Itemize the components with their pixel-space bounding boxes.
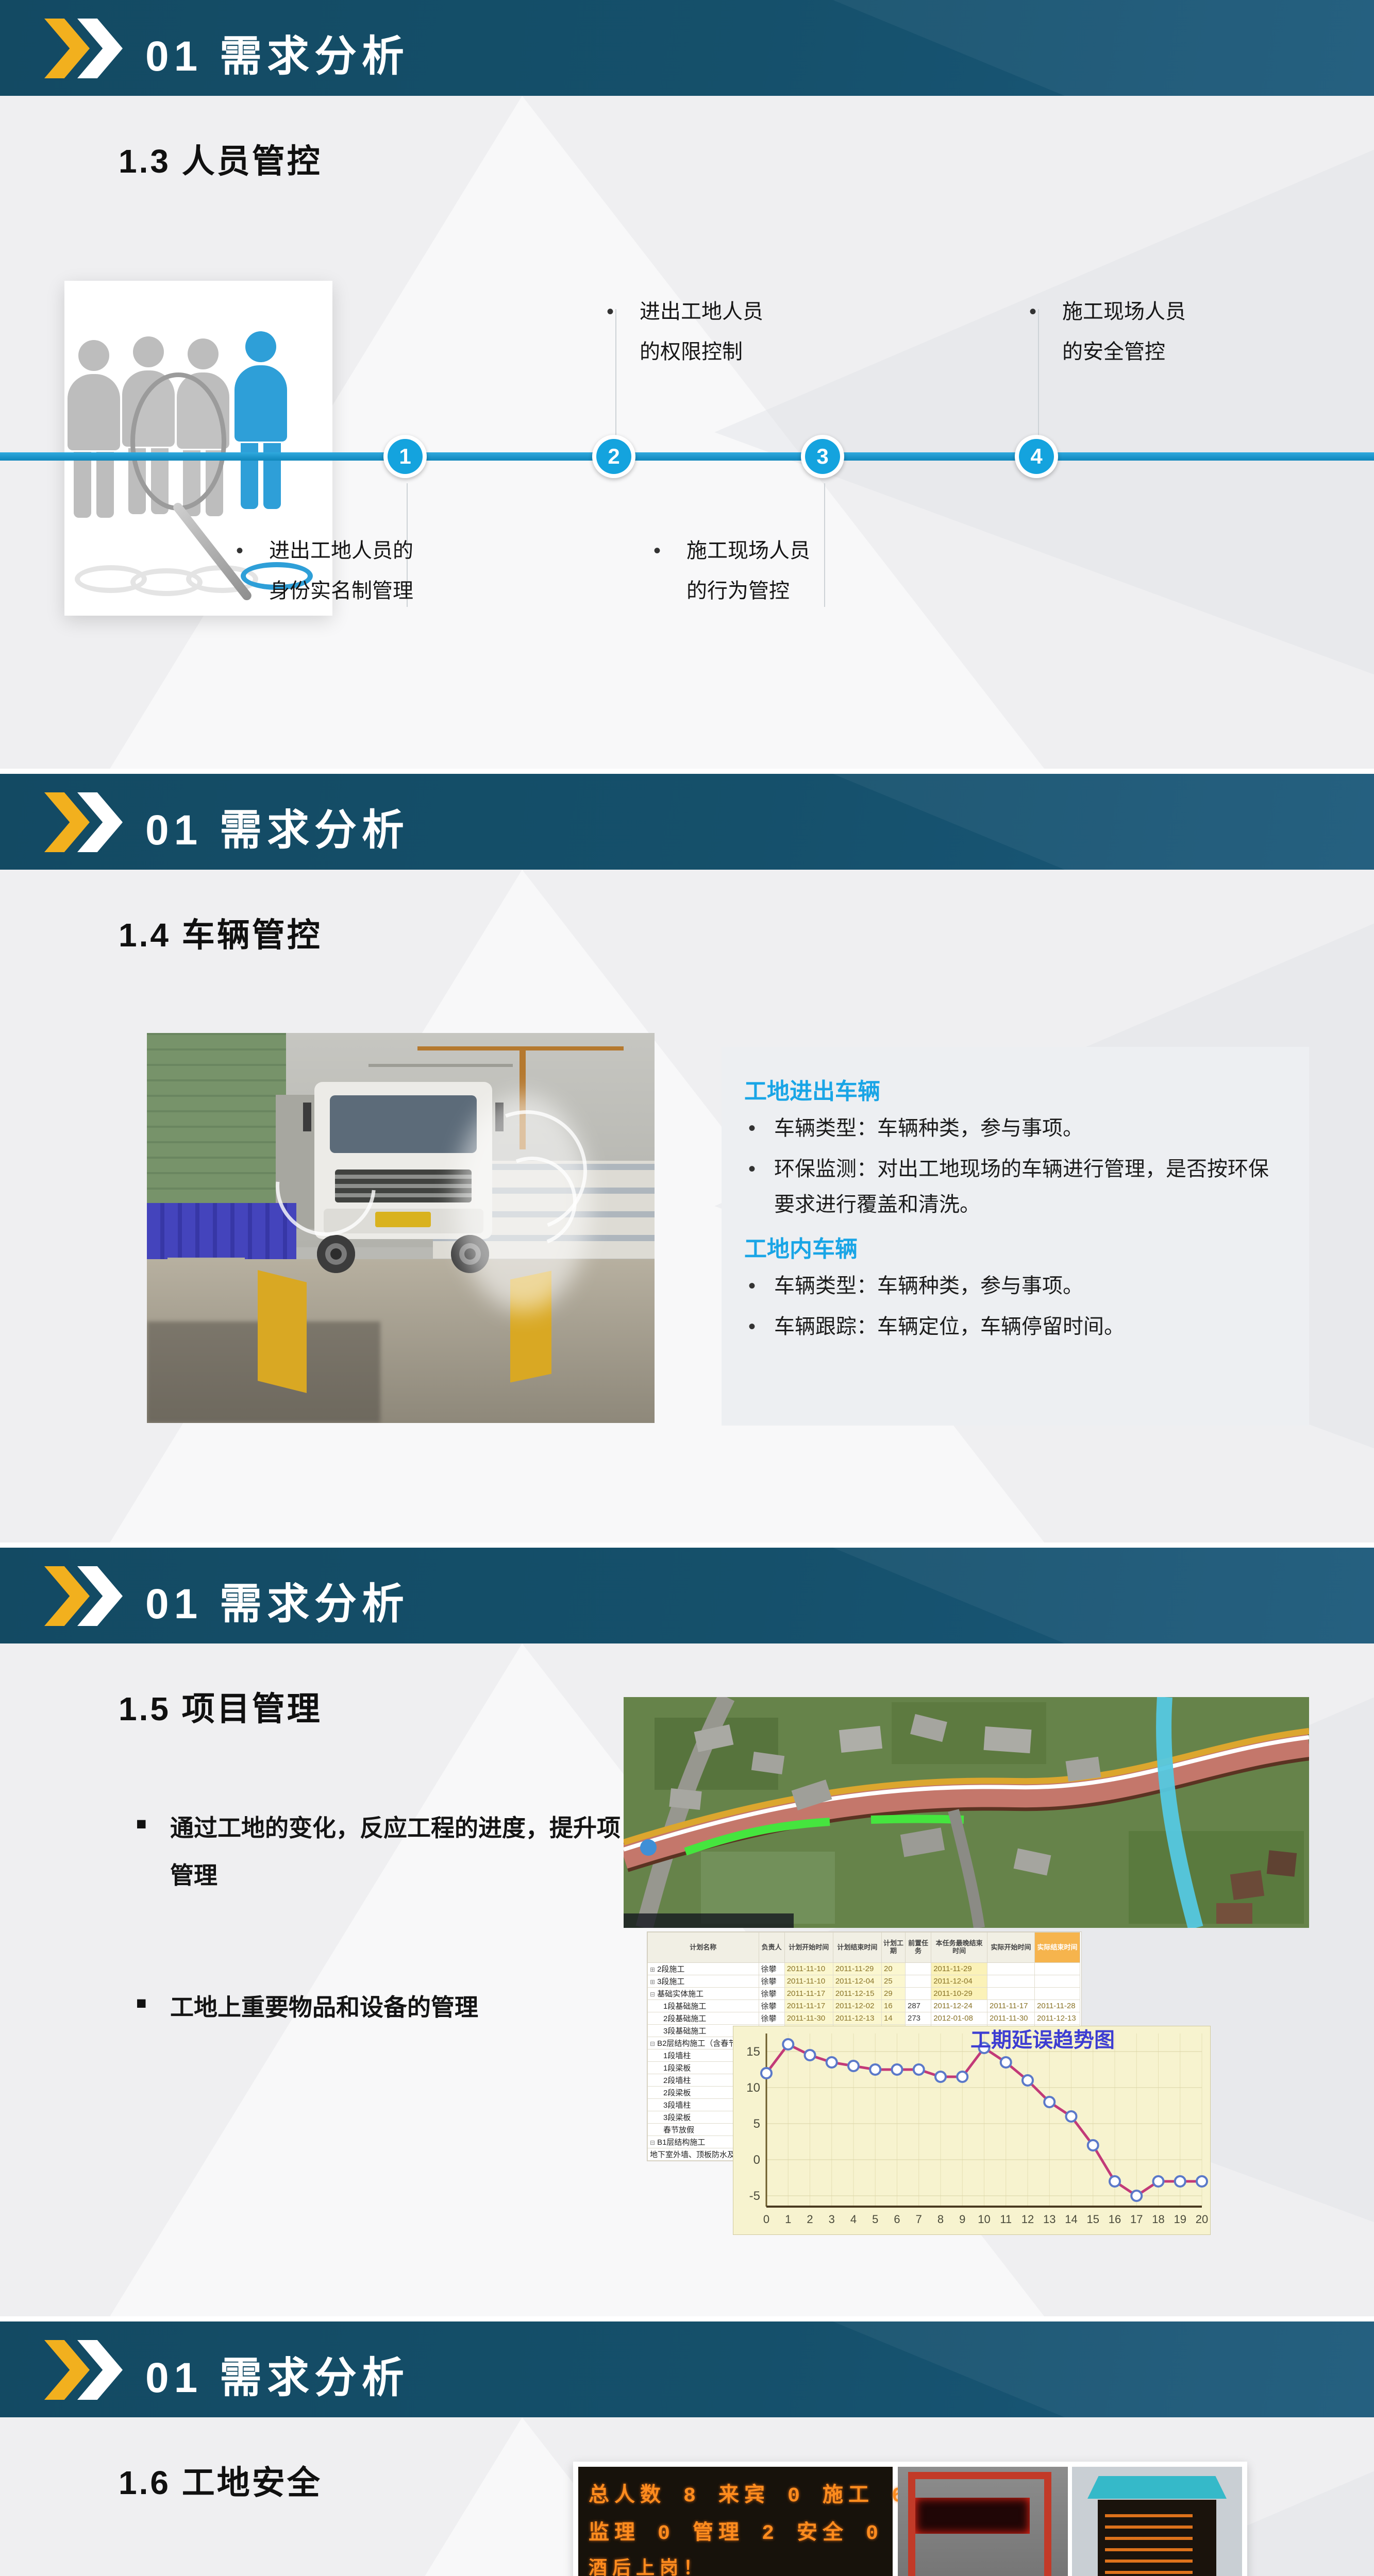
task-name-cell: 2段基础施工	[648, 2012, 759, 2025]
chart-data-point	[827, 2057, 837, 2067]
table-cell	[1035, 1963, 1080, 1975]
table-cell: 2011-11-30	[784, 2012, 833, 2025]
chart-data-point	[1088, 2140, 1098, 2150]
chart-label: 5	[872, 2213, 878, 2226]
chart-label: 12	[1021, 2213, 1034, 2226]
wash-bay-barrier	[258, 1270, 307, 1393]
header-shade	[601, 0, 1374, 96]
timeline-text: 进出工地人员 的权限控制	[607, 292, 828, 372]
chart-data-point	[805, 2050, 815, 2060]
table-cell: 2011-11-29	[833, 1963, 881, 1975]
map-building	[839, 1726, 882, 1753]
chart-data-point	[1197, 2176, 1207, 2187]
column-header: 计划开始时间	[784, 1933, 833, 1963]
table-cell: 2011-12-04	[833, 1975, 881, 1988]
chart-label: 3	[829, 2213, 835, 2226]
timeline-node: 4	[1015, 435, 1058, 478]
tree-toggle-icon[interactable]: ⊟	[650, 1991, 655, 1998]
chart-data-point	[870, 2064, 880, 2075]
timeline-label: •施工现场人员 的安全管控	[1029, 292, 1251, 372]
chart-label: 14	[1065, 2213, 1077, 2226]
led-text-line: 监理 0 管理 2 安全 0	[589, 2515, 893, 2546]
red-led-sign	[915, 2498, 1030, 2534]
section-header: 01 需求分析	[0, 774, 1374, 870]
header-shade	[601, 774, 1374, 870]
section-header-title: 01 需求分析	[145, 1569, 409, 1631]
chart-label: 16	[1109, 2213, 1121, 2226]
table-cell: 2011-12-04	[931, 1975, 987, 1988]
chart-label: 15	[1087, 2213, 1099, 2226]
photo-outdoor-led-board	[1072, 2467, 1242, 2576]
table-row[interactable]: ⊞3段施工徐攀2011-11-102011-12-04252011-12-04	[648, 1975, 1080, 1988]
table-cell: 2011-11-17	[987, 2000, 1035, 2012]
vehicle-section-heading: 工地内车辆	[744, 1230, 1286, 1263]
column-header: 计划工期	[881, 1933, 905, 1963]
table-cell: 2011-10-29	[931, 1988, 987, 2000]
column-header: 计划结束时间	[833, 1933, 881, 1963]
table-cell: 2011-11-17	[784, 2000, 833, 2012]
chart-label: -5	[749, 2189, 760, 2203]
chevron-icon	[44, 19, 90, 78]
photo-gate-led-scaffold	[898, 2467, 1068, 2576]
bullet-icon: •	[236, 531, 243, 571]
slide-title: 1.6 工地安全	[119, 2456, 322, 2504]
table-cell: 2011-11-29	[931, 1963, 987, 1975]
column-header: 前置任务	[906, 1933, 931, 1963]
table-cell	[906, 1975, 931, 1988]
slide-1-4-vehicle-control: 01 需求分析 1.4 车辆管控 工地进出车辆车辆类型：车辆种类，参与事项。环保…	[0, 774, 1374, 1543]
chart-data-point	[957, 2072, 967, 2082]
table-cell	[987, 1975, 1035, 1988]
table-cell: 徐攀	[759, 1988, 784, 2000]
chart-data-point	[1001, 2057, 1011, 2067]
tree-toggle-icon[interactable]: ⊞	[650, 1966, 655, 1973]
section-header-title: 01 需求分析	[145, 2343, 409, 2404]
task-name-cell: ⊟基础实体施工	[648, 1988, 759, 2000]
task-name-cell: 1段基础施工	[648, 2000, 759, 2012]
chart-label: 1	[785, 2213, 791, 2226]
highlighted-person-icon	[234, 331, 287, 509]
chart-label: 20	[1196, 2213, 1208, 2226]
table-cell: 2011-11-10	[784, 1963, 833, 1975]
table-cell: 2011-12-13	[1035, 2012, 1080, 2025]
map-building	[701, 1852, 835, 1924]
bullet-icon: •	[654, 531, 661, 571]
chart-data-point	[761, 2068, 772, 2078]
map-building	[1267, 1850, 1297, 1876]
table-cell	[987, 1988, 1035, 2000]
led-board	[1098, 2500, 1216, 2576]
vehicle-section-heading: 工地进出车辆	[744, 1073, 1286, 1106]
table-cell: 2011-11-17	[784, 1988, 833, 2000]
table-cell: 徐攀	[759, 1963, 784, 1975]
chart-data-point	[1066, 2111, 1077, 2122]
chevron-icon	[44, 792, 90, 852]
table-cell: 25	[881, 1975, 905, 1988]
bim-site-map-screenshot	[624, 1697, 1309, 1928]
slide-1-6-site-safety: 01 需求分析 1.6 工地安全 人员安全管理佩戴安全帽管理人员吸烟管理人员在工…	[0, 2321, 1374, 2576]
header-shade	[601, 2321, 1374, 2417]
section-header: 01 需求分析	[0, 0, 1374, 96]
table-cell: 2011-12-15	[833, 1988, 881, 2000]
column-header: 实际结束时间	[1035, 1933, 1080, 1963]
table-cell: 2011-11-30	[987, 2012, 1035, 2025]
timeline-node: 3	[801, 435, 844, 478]
chart-label: 15	[746, 2045, 760, 2059]
map-building	[984, 1726, 1032, 1753]
table-cell: 273	[906, 2012, 931, 2025]
table-cell	[906, 1988, 931, 2000]
table-cell: 16	[881, 2000, 905, 2012]
chart-label: 7	[916, 2213, 922, 2226]
column-header: 负责人	[759, 1933, 784, 1963]
table-row[interactable]: 1段基础施工徐攀2011-11-172011-12-02162872011-12…	[648, 2000, 1080, 2012]
section-header: 01 需求分析	[0, 2321, 1374, 2417]
chevron-icon	[44, 2340, 90, 2400]
table-row[interactable]: ⊟基础实体施工徐攀2011-11-172011-12-15292011-10-2…	[648, 1988, 1080, 2000]
map-toolbar	[624, 1913, 794, 1928]
chart-label: 工期延误趋势图	[970, 2029, 1115, 2052]
map-compass-icon	[640, 1839, 657, 1856]
chart-data-point	[848, 2061, 859, 2071]
bullet-icon: •	[607, 292, 614, 332]
chart-data-point	[783, 2039, 793, 2049]
led-headcount-display: 总人数 8 来宾 0 施工 6监理 0 管理 2 安全 0酒后上岗！	[578, 2467, 893, 2576]
bullet-progress: 通过工地的变化，反应工程的进度，提升项目管理	[170, 1804, 665, 1899]
canopy	[1087, 2476, 1227, 2499]
table-cell: 2011-12-13	[833, 2012, 881, 2025]
map-building	[1216, 1903, 1252, 1924]
table-cell: 20	[881, 1963, 905, 1975]
chart-data-point	[1110, 2176, 1120, 2187]
table-row[interactable]: ⊞2段施工徐攀2011-11-102011-11-29202011-11-29	[648, 1963, 1080, 1975]
magnifier-icon	[130, 372, 226, 511]
chart-label: 8	[937, 2213, 944, 2226]
chart-data-point	[914, 2064, 924, 2075]
timeline-node: 2	[592, 435, 635, 478]
chart-label: 0	[753, 2153, 760, 2167]
header-shade	[601, 1548, 1374, 1643]
table-cell	[1035, 1975, 1080, 1988]
vehicle-bullet: 环保监测：对出工地现场的车辆进行管理，是否按环保要求进行覆盖和清洗。	[744, 1151, 1286, 1223]
vehicle-bullet: 车辆类型：车辆种类，参与事项。	[744, 1268, 1286, 1304]
chart-label: 9	[959, 2213, 965, 2226]
led-text-line: 总人数 8 来宾 0 施工 6	[589, 2478, 893, 2508]
chart-label: 0	[763, 2213, 769, 2226]
table-header-row: 计划名称负责人计划开始时间计划结束时间计划工期前置任务本任务最晚结束时间实际开始…	[648, 1933, 1080, 1963]
tree-toggle-icon[interactable]: ⊟	[650, 2040, 655, 2047]
chart-label: 10	[746, 2081, 760, 2095]
timeline-number: 3	[805, 439, 840, 474]
chart-label: 11	[1000, 2213, 1012, 2226]
chart-label: 6	[894, 2213, 900, 2226]
timeline-label: •进出工地人员 的权限控制	[607, 292, 828, 372]
chart-data-point	[1023, 2075, 1033, 2086]
table-cell: 29	[881, 1988, 905, 2000]
column-header: 本任务最晚结束时间	[931, 1933, 987, 1963]
slide-title: 1.3 人员管控	[119, 135, 322, 182]
chart-label: 4	[850, 2213, 857, 2226]
table-cell	[987, 1963, 1035, 1975]
table-cell: 2011-12-02	[833, 2000, 881, 2012]
vehicle-bullet-list: 车辆类型：车辆种类，参与事项。环保监测：对出工地现场的车辆进行管理，是否按环保要…	[744, 1111, 1286, 1222]
table-cell: 2011-12-24	[931, 2000, 987, 2012]
slide-1-5-project-management: 01 需求分析 1.5 项目管理 通过工地的变化，反应工程的进度，提升项目管理 …	[0, 1548, 1374, 2316]
map-building	[669, 1788, 701, 1810]
vehicle-info-panel: 工地进出车辆车辆类型：车辆种类，参与事项。环保监测：对出工地现场的车辆进行管理，…	[722, 1047, 1309, 1426]
slide-1-3-personnel-control: 01 需求分析 1.3 人员管控 1•进出工地人员的 身份实名制管理2•进出工地…	[0, 0, 1374, 769]
site-safety-photo-collage: 总人数 8 来宾 0 施工 6监理 0 管理 2 安全 0酒后上岗！	[573, 2462, 1247, 2576]
chart-data-point	[935, 2072, 946, 2082]
timeline-label: •施工现场人员 的行为管控	[654, 531, 875, 611]
timeline-label: •进出工地人员的 身份实名制管理	[236, 531, 458, 611]
timeline-number: 2	[596, 439, 631, 474]
table-cell: 徐攀	[759, 1975, 784, 1988]
table-cell	[906, 1963, 931, 1975]
table-cell: 2011-11-28	[1035, 2000, 1080, 2012]
section-header: 01 需求分析	[0, 1548, 1374, 1643]
chart-data-point	[1175, 2176, 1185, 2187]
tree-toggle-icon[interactable]: ⊟	[650, 2139, 655, 2146]
chart-data-point	[1044, 2097, 1054, 2107]
chart-label: 13	[1043, 2213, 1055, 2226]
chart-data-point	[1131, 2191, 1142, 2201]
vehicle-bullet: 车辆跟踪：车辆定位，车辆停留时间。	[744, 1309, 1286, 1345]
column-header: 计划名称	[648, 1933, 759, 1963]
table-cell	[1035, 1988, 1080, 2000]
timeline-node: 1	[383, 435, 427, 478]
table-cell: 徐攀	[759, 2000, 784, 2012]
table-cell: 287	[906, 2000, 931, 2012]
table-row[interactable]: 2段基础施工徐攀2011-11-302011-12-13142732012-01…	[648, 2012, 1080, 2025]
chart-label: 18	[1152, 2213, 1164, 2226]
vehicle-bullet-list: 车辆类型：车辆种类，参与事项。车辆跟踪：车辆定位，车辆停留时间。	[744, 1268, 1286, 1345]
chart-data-point	[1153, 2176, 1164, 2187]
map-building	[1230, 1870, 1264, 1900]
person-icon	[68, 340, 120, 518]
timeline-text: 施工现场人员 的行为管控	[654, 531, 875, 611]
slide-title: 1.5 项目管理	[119, 1683, 322, 1730]
vehicle-bullet: 车辆类型：车辆种类，参与事项。	[744, 1111, 1286, 1146]
led-text-line: 酒后上岗！	[589, 2553, 893, 2576]
chart-label: 2	[807, 2213, 813, 2226]
task-name-cell: ⊞3段施工	[648, 1975, 759, 1988]
table-cell: 2011-11-10	[784, 1975, 833, 1988]
chart-label: 10	[978, 2213, 990, 2226]
column-header: 实际开始时间	[987, 1933, 1035, 1963]
bullet-icon: •	[1029, 292, 1036, 332]
table-cell: 2012-01-08	[931, 2012, 987, 2025]
chart-label: 17	[1130, 2213, 1143, 2226]
timeline-number: 4	[1019, 439, 1054, 474]
tree-toggle-icon[interactable]: ⊞	[650, 1978, 655, 1986]
section-header-title: 01 需求分析	[145, 795, 409, 857]
timeline-text: 进出工地人员的 身份实名制管理	[236, 531, 458, 611]
task-name-cell: ⊞2段施工	[648, 1963, 759, 1975]
timeline-number: 1	[388, 439, 423, 474]
truck-washing-photo	[147, 1033, 655, 1423]
timeline-line	[0, 452, 1374, 461]
timeline-text: 施工现场人员 的安全管控	[1029, 292, 1251, 372]
delay-trend-chart: 151050-501234567891011121314151617181920…	[733, 2026, 1211, 2235]
chevron-icon	[44, 1566, 90, 1626]
chart-label: 19	[1174, 2213, 1186, 2226]
chart-label: 5	[753, 2117, 760, 2131]
section-header-title: 01 需求分析	[145, 22, 409, 83]
table-cell: 徐攀	[759, 2012, 784, 2025]
chart-data-point	[892, 2064, 902, 2075]
bullet-equipment: 工地上重要物品和设备的管理	[170, 1984, 665, 2031]
table-cell: 14	[881, 2012, 905, 2025]
slide-title: 1.4 车辆管控	[119, 909, 322, 956]
